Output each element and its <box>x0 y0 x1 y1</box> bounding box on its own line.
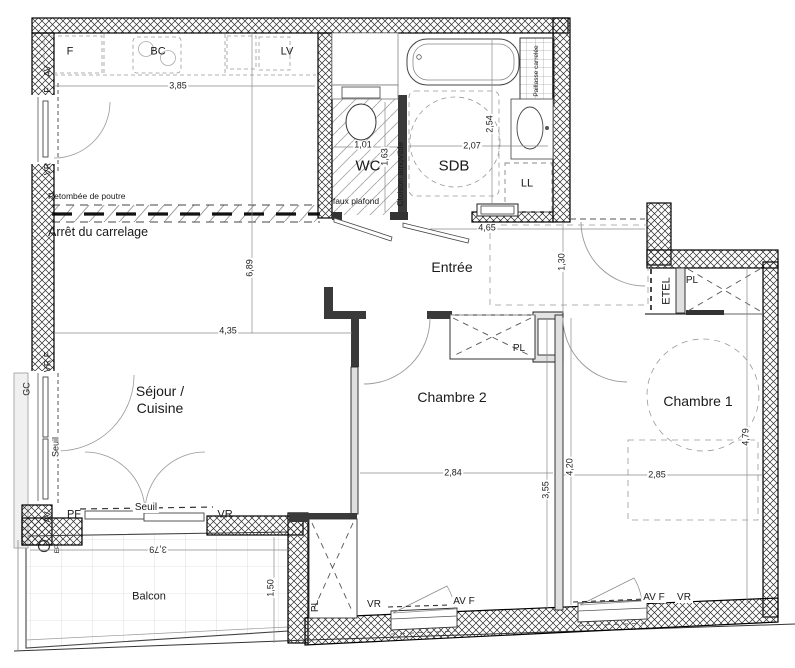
floorplan-drawing <box>0 0 795 668</box>
room-label-balcon: Balcon <box>132 592 166 603</box>
appliance-label-lv: LV <box>281 47 294 58</box>
door-swing-kitchen-window <box>54 102 110 158</box>
beam-retombee-band <box>52 205 320 222</box>
dim-chambre1-width: 2,85 <box>647 471 667 480</box>
opening-label-vr-chambre1: VR <box>675 593 693 603</box>
room-label-wc: WC <box>356 159 381 174</box>
note-cloison-amovible: Cloison amovible <box>396 142 405 207</box>
wall-wc-left <box>318 33 332 218</box>
appliance-label-bc: BC <box>150 47 165 58</box>
opening-label-pf-bay: PF <box>67 510 81 521</box>
window-chambre1 <box>578 600 647 622</box>
dim-chambre2-width: 2,84 <box>443 469 463 478</box>
room-label-sejour: Séjour / <box>136 384 184 398</box>
dim-sejour-height: 6,89 <box>246 258 255 278</box>
wall-sejour-ch2 <box>351 367 358 514</box>
dim-sejour-width-top: 3,85 <box>168 82 188 91</box>
opening-label-seuil-left: Seuil <box>52 435 61 459</box>
room-label-cuisine: Cuisine <box>137 401 184 415</box>
entree-clearance <box>490 225 648 305</box>
closets <box>309 269 760 618</box>
opening-label-gc: GC <box>23 382 32 396</box>
opening-label-ep: EP <box>55 545 62 554</box>
appliance-label-fridge: F <box>67 47 74 58</box>
dim-chambre1-depth: 4,79 <box>742 427 751 447</box>
dim-sejour-width: 4,35 <box>218 327 238 336</box>
opening-label-avf-chambre2: AV F <box>451 597 476 607</box>
room-label-sdb: SDB <box>439 159 470 174</box>
dim-wc-depth: 1,63 <box>381 147 390 167</box>
wall-right <box>763 262 778 617</box>
wall-top <box>32 18 568 33</box>
note-paillasse-carrelee: Paillasse carrelée <box>534 45 541 96</box>
closet-label-pl-chambre2: PL <box>311 600 321 612</box>
room-label-chambre2: Chambre 2 <box>417 390 486 404</box>
dim-chambre2-depth: 3,55 <box>542 480 551 500</box>
closet-label-etel: ETEL <box>662 277 673 305</box>
toilet <box>346 104 376 140</box>
etel-right-wall <box>676 268 685 313</box>
kitchen-counter <box>44 34 316 75</box>
wall-ch1-top <box>647 250 778 268</box>
appliance-label-ll: LL <box>521 179 533 190</box>
wall-ch1-ch2 <box>555 315 563 610</box>
bed-chambre1 <box>628 440 758 520</box>
door-swing-sejour-window <box>58 375 134 451</box>
dim-chambre1-left-depth: 4,20 <box>566 457 575 477</box>
chambre1-door-swing <box>563 318 627 382</box>
opening-label-avf-chambre1: AV F <box>641 593 666 603</box>
note-faux-plafond: faux plafond <box>333 197 379 206</box>
note-arret-du-carrelage: Arrêt du carrelage <box>48 226 148 239</box>
dim-hall-depth: 1,30 <box>558 252 567 272</box>
dim-balcon-depth: 1,50 <box>267 578 276 598</box>
closet-label-pl-chambre1: PL <box>686 276 698 286</box>
opening-label-av-kitchen: AV <box>44 65 53 76</box>
wc-door-leaf <box>334 218 392 241</box>
basin-tap <box>545 126 549 130</box>
wc-duct <box>332 33 398 85</box>
room-label-chambre1: Chambre 1 <box>663 394 732 408</box>
wall-sdb-right <box>553 18 570 222</box>
furniture-dashed <box>490 225 759 520</box>
opening-label-seuil-bay: Seuil <box>133 503 159 513</box>
shower-zone <box>409 91 499 196</box>
note-retombee-de-poutre: Retombée de poutre <box>48 192 126 201</box>
dim-sdb-width: 2,07 <box>462 142 482 151</box>
bay-window-leaf-right <box>144 513 204 521</box>
dim-balcon-width: 3,79 <box>148 545 168 554</box>
opening-label-vr-kitchen: VR <box>44 163 53 176</box>
sdb-door-leaf <box>403 223 469 243</box>
opening-label-av-bay: AV <box>44 511 53 522</box>
opening-label-vr-bay: VR <box>217 510 232 521</box>
dim-sdb-depth: 2,54 <box>486 114 495 134</box>
opening-label-vrf-sejour: VR F <box>44 352 53 373</box>
dim-entree-width: 4,65 <box>477 224 497 233</box>
closet-label-pl-entree: PL <box>513 344 525 354</box>
bathtub <box>407 39 519 85</box>
front-door-swing <box>581 222 645 286</box>
room-label-entree: Entrée <box>431 260 472 274</box>
opening-label-f-kitchen: F <box>44 87 53 93</box>
opening-label-vr-chambre2: VR <box>365 600 383 610</box>
dim-wc-width: 1,01 <box>353 141 373 150</box>
chambre2-door-swing <box>364 318 430 384</box>
apartment-floorplan: Séjour / Cuisine WC SDB Entrée Chambre 2… <box>0 0 795 668</box>
